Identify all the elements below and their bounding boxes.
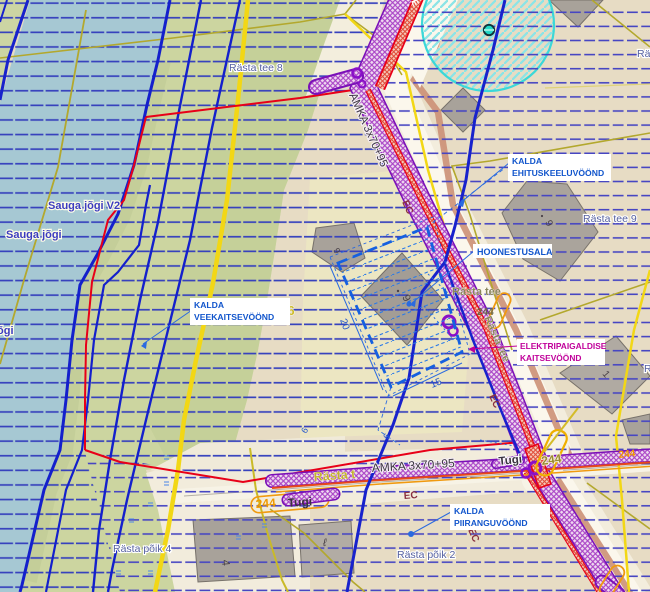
svg-text:244: 244 — [618, 448, 636, 461]
svg-text:244: 244 — [477, 307, 494, 318]
svg-text:KALDA: KALDA — [512, 156, 542, 166]
svg-text:Rästa põik 4: Rästa põik 4 — [113, 543, 172, 555]
svg-text:KALDA: KALDA — [454, 506, 484, 516]
svg-text:Rästa tee 8: Rästa tee 8 — [229, 62, 283, 74]
svg-text:Sauga jõgi V2: Sauga jõgi V2 — [48, 200, 120, 212]
svg-text:ELEKTRIPAIGALDISE: ELEKTRIPAIGALDISE — [520, 341, 607, 351]
svg-text:KALDA: KALDA — [194, 300, 224, 310]
svg-text:Rästa t: Rästa t — [313, 467, 356, 484]
svg-text:Tugi: Tugi — [498, 454, 523, 468]
svg-text:Rästa: Rästa — [644, 363, 650, 375]
svg-text:Rästa põik 2: Rästa põik 2 — [397, 549, 456, 561]
svg-text:4: 4 — [219, 559, 231, 566]
svg-text:Sauga jõgi: Sauga jõgi — [6, 229, 62, 241]
svg-text:Rästa tee: Rästa tee — [452, 286, 501, 298]
svg-text:Tugi: Tugi — [287, 494, 312, 510]
svg-text:Rä: Rä — [637, 48, 650, 60]
svg-text:VEEKAITSEVÖÖND: VEEKAITSEVÖÖND — [194, 312, 274, 322]
svg-text:HOONESTUSALA: HOONESTUSALA — [477, 247, 553, 257]
svg-text:244: 244 — [255, 496, 276, 511]
svg-text:244: 244 — [540, 451, 562, 468]
svg-text:KAITSEVÖÖND: KAITSEVÖÖND — [520, 353, 581, 363]
svg-text:Rästa tee 9: Rästa tee 9 — [583, 213, 637, 225]
svg-text:PIIRANGUVÖÖND: PIIRANGUVÖÖND — [454, 518, 528, 528]
svg-text:ℓ: ℓ — [322, 537, 327, 549]
svg-text:EC: EC — [403, 490, 418, 502]
svg-text:EHITUSKEELUVÖÖND: EHITUSKEELUVÖÖND — [512, 168, 604, 178]
svg-text:õgi: õgi — [0, 325, 14, 337]
